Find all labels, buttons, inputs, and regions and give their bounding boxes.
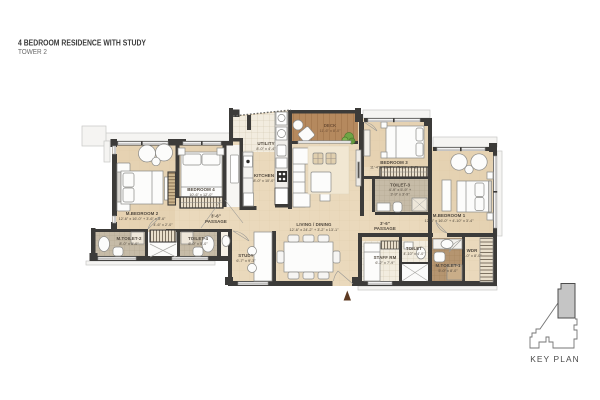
svg-text:12'-6" x 24'-2" + 3'-2" x 13'-: 12'-6" x 24'-2" + 3'-2" x 13'-1" [290, 228, 340, 232]
svg-text:STAFF RM: STAFF RM [374, 255, 397, 260]
svg-text:6'-7" x 9'-3": 6'-7" x 9'-3" [236, 259, 256, 263]
svg-text:PASSAGE: PASSAGE [205, 219, 227, 224]
svg-text:STUDY: STUDY [238, 253, 253, 258]
svg-text:3'-0" x 8'-0": 3'-0" x 8'-0" [462, 254, 482, 258]
svg-text:PASSAGE: PASSAGE [374, 226, 396, 231]
svg-text:6'-2" x 7'-9": 6'-2" x 7'-9" [375, 261, 395, 265]
svg-text:4 BEDROOM RESIDENCE WITH STUDY: 4 BEDROOM RESIDENCE WITH STUDY [18, 38, 146, 48]
svg-text:TOWER 2: TOWER 2 [18, 47, 47, 56]
svg-text:M.TOILET-1: M.TOILET-1 [435, 263, 461, 268]
svg-text:UTILITY: UTILITY [257, 141, 274, 146]
svg-text:LIVING / DINING: LIVING / DINING [296, 222, 332, 227]
svg-text:8'-0" x 5'-0": 8'-0" x 5'-0" [188, 242, 208, 246]
svg-text:TOILET: TOILET [406, 246, 422, 251]
svg-text:3'-6": 3'-6" [211, 214, 221, 219]
svg-text:4'-10" x 4'-0": 4'-10" x 4'-0" [403, 252, 425, 256]
svg-text:11'-4" x 11'-0" + 7'-11" x 8'-: 11'-4" x 11'-0" + 7'-11" x 8'-2" [370, 166, 419, 170]
svg-text:4'-9" x 5'-9" +: 4'-9" x 5'-9" + [389, 188, 412, 192]
svg-text:M.BEDROOM 2: M.BEDROOM 2 [126, 211, 159, 216]
svg-text:8'-0" x 5'-0": 8'-0" x 5'-0" [119, 242, 139, 246]
svg-text:BEDROOM 3: BEDROOM 3 [380, 160, 408, 165]
svg-text:M.BEDROOM 1: M.BEDROOM 1 [433, 213, 466, 218]
svg-text:KITCHEN: KITCHEN [254, 173, 274, 178]
svg-text:TOILET-4: TOILET-4 [188, 236, 208, 241]
svg-text:DECK: DECK [324, 123, 337, 128]
svg-text:WDR: WDR [467, 248, 479, 253]
svg-text:8'-0" x 10'-0": 8'-0" x 10'-0" [253, 179, 275, 183]
svg-text:10'-6" x 12'-0": 10'-6" x 12'-0" [189, 193, 213, 197]
svg-text:TOILET-3: TOILET-3 [390, 183, 410, 188]
svg-text:4'-6" x 2'-0": 4'-6" x 2'-0" [153, 223, 173, 227]
svg-text:M.TOILET-2: M.TOILET-2 [116, 236, 142, 241]
svg-text:12'-6" x 16'-0" + 4'-10" x 3'-: 12'-6" x 16'-0" + 4'-10" x 3'-4" [425, 219, 475, 223]
svg-text:3'-9" x 3'-9": 3'-9" x 3'-9" [390, 193, 410, 197]
svg-text:11'-6" x 8'-0": 11'-6" x 8'-0" [320, 129, 342, 133]
svg-text:12'-6" x 16'-0" + 3'-6" x 3'-6: 12'-6" x 16'-0" + 3'-6" x 3'-6" [119, 217, 166, 221]
svg-text:BEDROOM 4: BEDROOM 4 [187, 187, 215, 192]
svg-text:KEY PLAN: KEY PLAN [530, 354, 580, 364]
svg-text:8'-0" x 4'-4": 8'-0" x 4'-4" [256, 147, 276, 151]
svg-text:5'-0" x 8'-0": 5'-0" x 8'-0" [438, 269, 458, 273]
